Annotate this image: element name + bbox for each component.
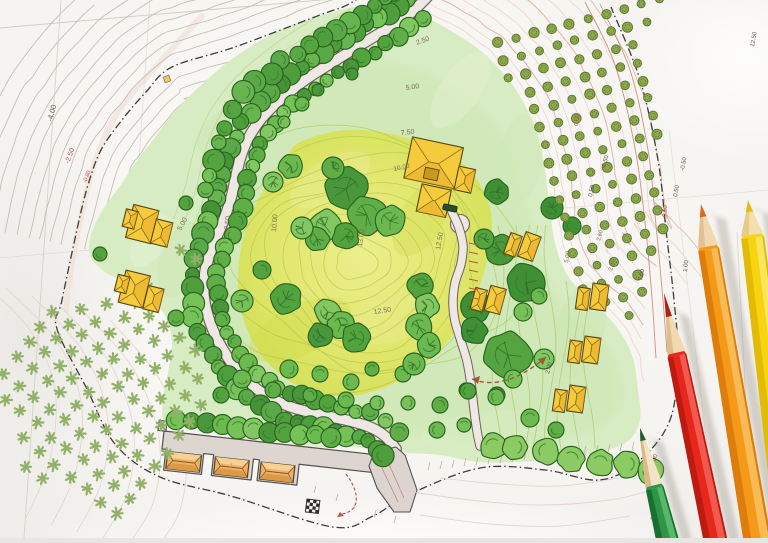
svg-text:1.00: 1.00 — [683, 259, 690, 272]
svg-text:7.50: 7.50 — [401, 129, 415, 137]
svg-text:0.00: 0.00 — [662, 204, 669, 217]
svg-text:7.50: 7.50 — [224, 216, 232, 230]
svg-text:0.00: 0.00 — [574, 113, 581, 126]
